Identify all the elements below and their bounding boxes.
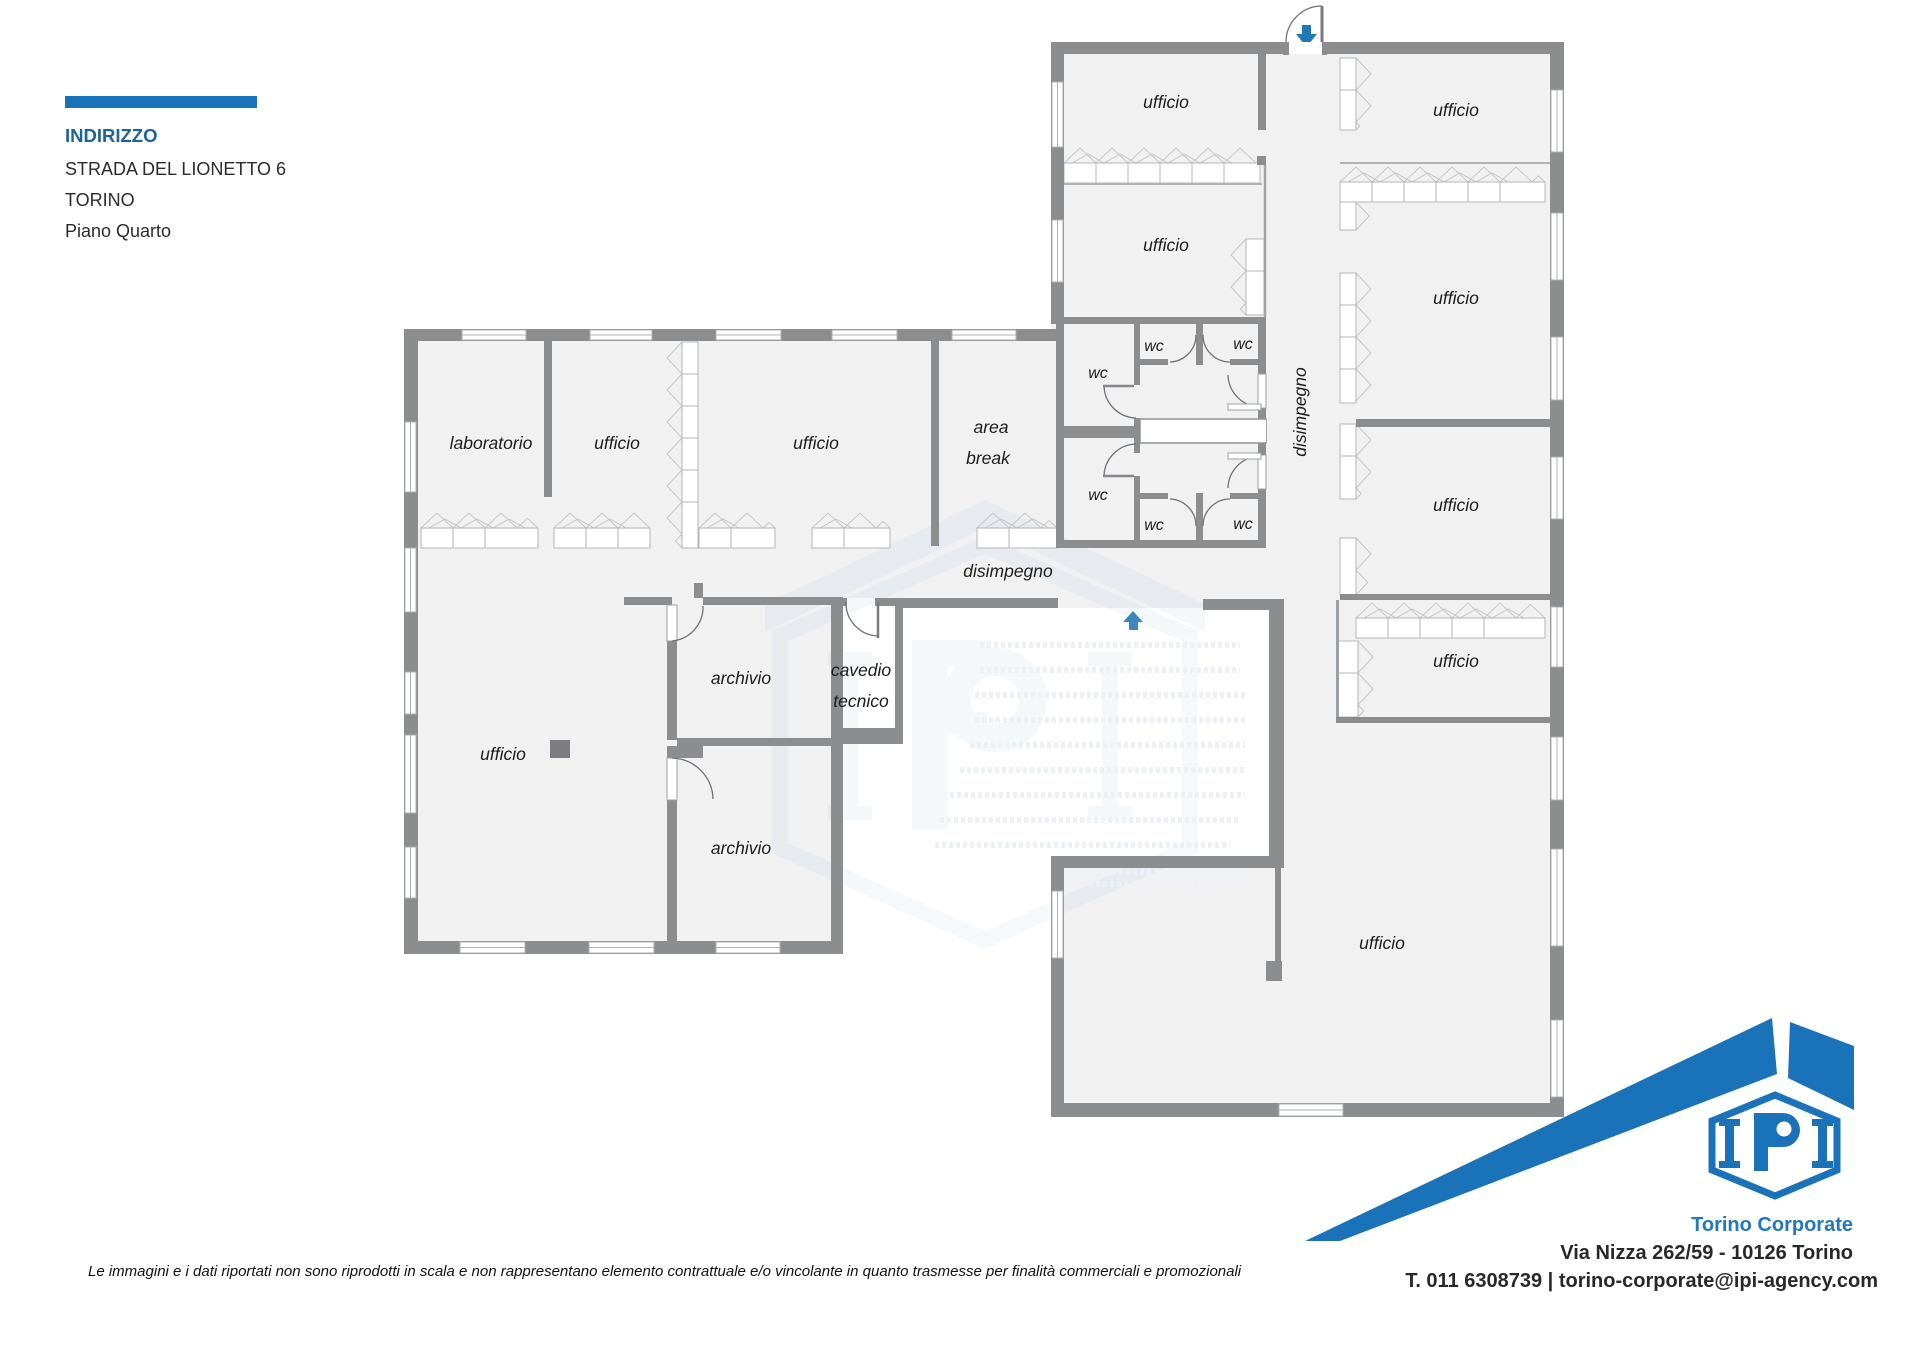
- svg-text:area: area: [973, 417, 1008, 437]
- svg-text:wc: wc: [1144, 338, 1164, 355]
- svg-text:INDIRIZZO: INDIRIZZO: [65, 125, 158, 146]
- svg-text:archivio: archivio: [711, 838, 772, 858]
- svg-text:TORINO: TORINO: [65, 190, 135, 210]
- svg-text:STRADA DEL LIONETTO 6: STRADA DEL LIONETTO 6: [65, 159, 286, 179]
- svg-text:break: break: [966, 448, 1011, 468]
- svg-text:cavedio: cavedio: [831, 660, 892, 680]
- svg-text:tecnico: tecnico: [833, 691, 889, 711]
- svg-text:Piano Quarto: Piano Quarto: [65, 221, 171, 241]
- svg-text:wc: wc: [1233, 516, 1253, 533]
- svg-text:wc: wc: [1144, 517, 1164, 534]
- svg-text:disimpegno: disimpegno: [1290, 367, 1310, 457]
- svg-text:ufficio: ufficio: [1433, 288, 1479, 308]
- svg-text:archivio: archivio: [711, 668, 772, 688]
- svg-text:Le immagini e i dati riportati: Le immagini e i dati riportati non sono …: [88, 1263, 1242, 1280]
- svg-text:laboratorio: laboratorio: [450, 433, 533, 453]
- svg-text:disimpegno: disimpegno: [963, 561, 1053, 581]
- svg-text:ufficio: ufficio: [1433, 100, 1479, 120]
- svg-text:wc: wc: [1088, 365, 1108, 382]
- svg-text:ufficio: ufficio: [594, 433, 640, 453]
- svg-text:wc: wc: [1233, 336, 1253, 353]
- svg-text:ufficio: ufficio: [1433, 495, 1479, 515]
- svg-text:ufficio: ufficio: [1143, 92, 1189, 112]
- svg-text:ufficio: ufficio: [1433, 651, 1479, 671]
- svg-text:Via Nizza 262/59 - 10126 Torin: Via Nizza 262/59 - 10126 Torino: [1560, 1242, 1853, 1264]
- svg-text:ufficio: ufficio: [1143, 235, 1189, 255]
- svg-text:wc: wc: [1088, 487, 1108, 504]
- svg-text:ufficio: ufficio: [1359, 933, 1405, 953]
- svg-text:ufficio: ufficio: [480, 744, 526, 764]
- svg-text:Torino Corporate: Torino Corporate: [1691, 1214, 1853, 1236]
- svg-text:ufficio: ufficio: [793, 433, 839, 453]
- svg-text:T. 011 6308739 | torino-corpor: T. 011 6308739 | torino-corporate@ipi-ag…: [1405, 1270, 1878, 1292]
